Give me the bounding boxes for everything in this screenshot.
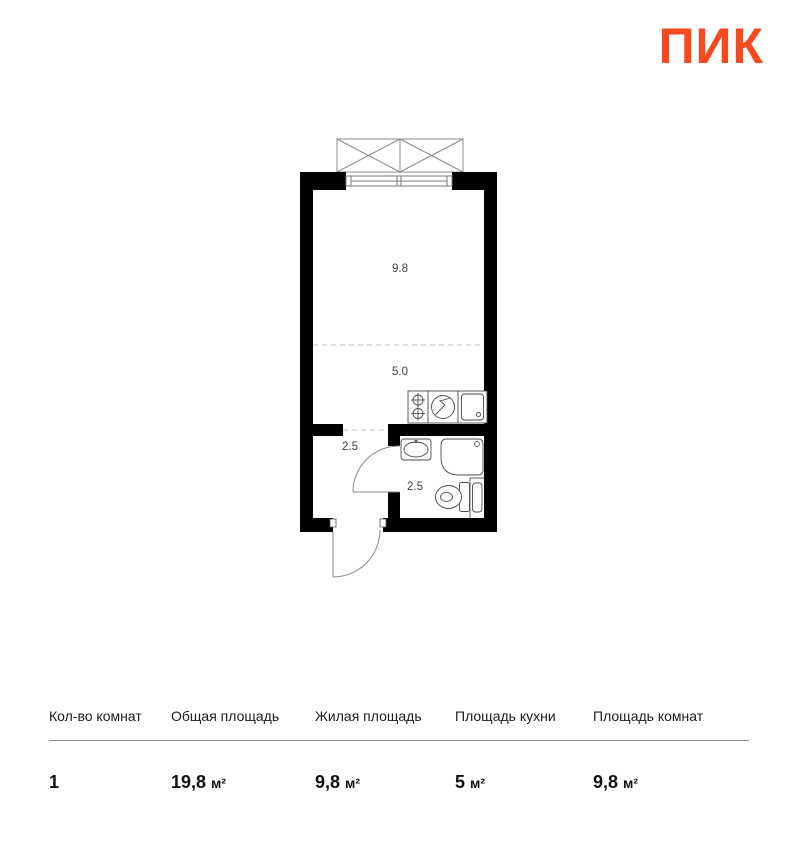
summary-col-rooms-area: Площадь комнат 9,8м² bbox=[593, 708, 703, 793]
col-value-rooms-area: 9,8м² bbox=[593, 772, 703, 793]
summary-col-living-area: Жилая площадь 9,8м² bbox=[315, 708, 422, 793]
col-label-total-area: Общая площадь bbox=[171, 708, 279, 724]
col-label-rooms: Кол-во комнат bbox=[49, 708, 142, 724]
summary-col-kitchen-area: Площадь кухни 5м² bbox=[455, 708, 556, 793]
col-value-living-area: 9,8м² bbox=[315, 772, 422, 793]
apartment-summary-table: Кол-во комнат 1 Общая площадь 19,8м² Жил… bbox=[0, 0, 800, 850]
col-value-kitchen-area: 5м² bbox=[455, 772, 556, 793]
summary-col-total-area: Общая площадь 19,8м² bbox=[171, 708, 279, 793]
col-value-total-area: 19,8м² bbox=[171, 772, 279, 793]
summary-col-rooms: Кол-во комнат 1 bbox=[49, 708, 142, 793]
col-label-rooms-area: Площадь комнат bbox=[593, 708, 703, 724]
col-label-kitchen-area: Площадь кухни bbox=[455, 708, 556, 724]
col-label-living-area: Жилая площадь bbox=[315, 708, 422, 724]
col-value-rooms: 1 bbox=[49, 772, 142, 793]
